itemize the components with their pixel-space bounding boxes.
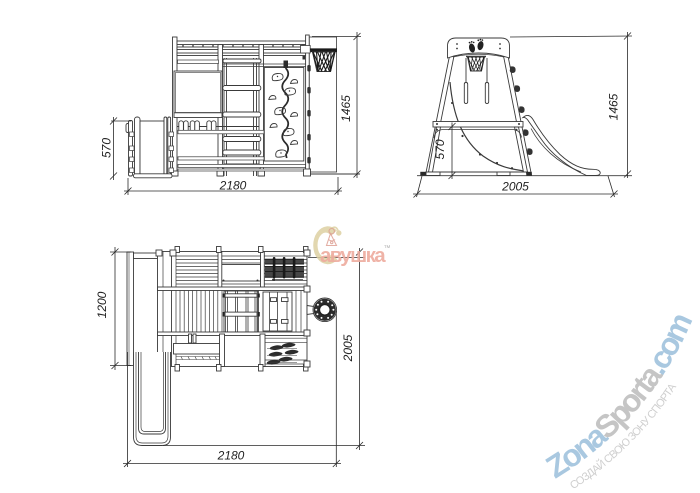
svg-text:™: ™ xyxy=(384,245,391,252)
svg-text:2180: 2180 xyxy=(217,449,245,463)
svg-text:2180: 2180 xyxy=(219,179,247,193)
svg-text:2005: 2005 xyxy=(341,334,355,362)
svg-text:1465: 1465 xyxy=(607,93,621,120)
svg-text:ZonaSporta.com: ZonaSporta.com xyxy=(539,308,699,485)
svg-text:1465: 1465 xyxy=(339,95,353,122)
svg-text:2005: 2005 xyxy=(501,180,529,194)
svg-text:570: 570 xyxy=(433,139,447,159)
svg-text:авушка: авушка xyxy=(320,244,386,267)
svg-text:1200: 1200 xyxy=(95,291,109,318)
svg-text:570: 570 xyxy=(100,138,114,158)
